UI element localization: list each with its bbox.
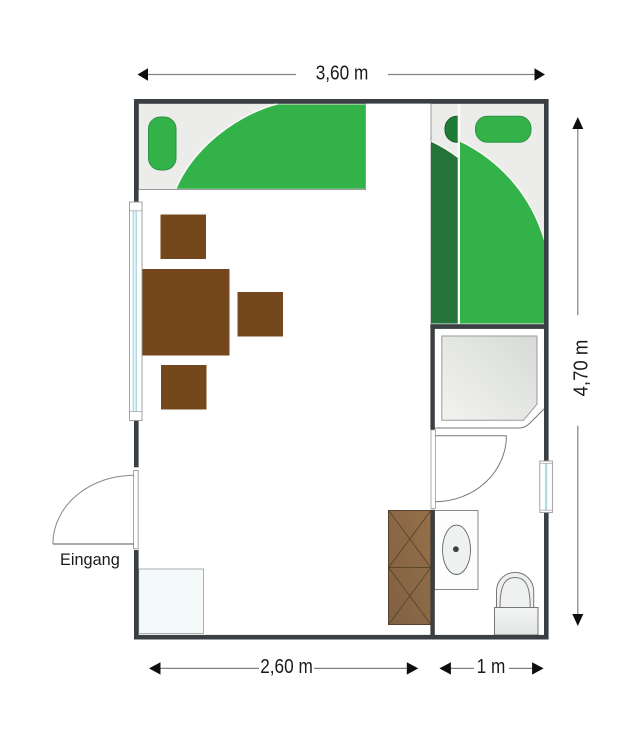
svg-text:4,70 m: 4,70 m [571, 340, 593, 397]
svg-text:2,60 m: 2,60 m [260, 655, 313, 678]
svg-text:Eingang: Eingang [60, 551, 120, 569]
svg-text:1 m: 1 m [477, 655, 506, 678]
svg-text:3,60 m: 3,60 m [316, 61, 369, 84]
